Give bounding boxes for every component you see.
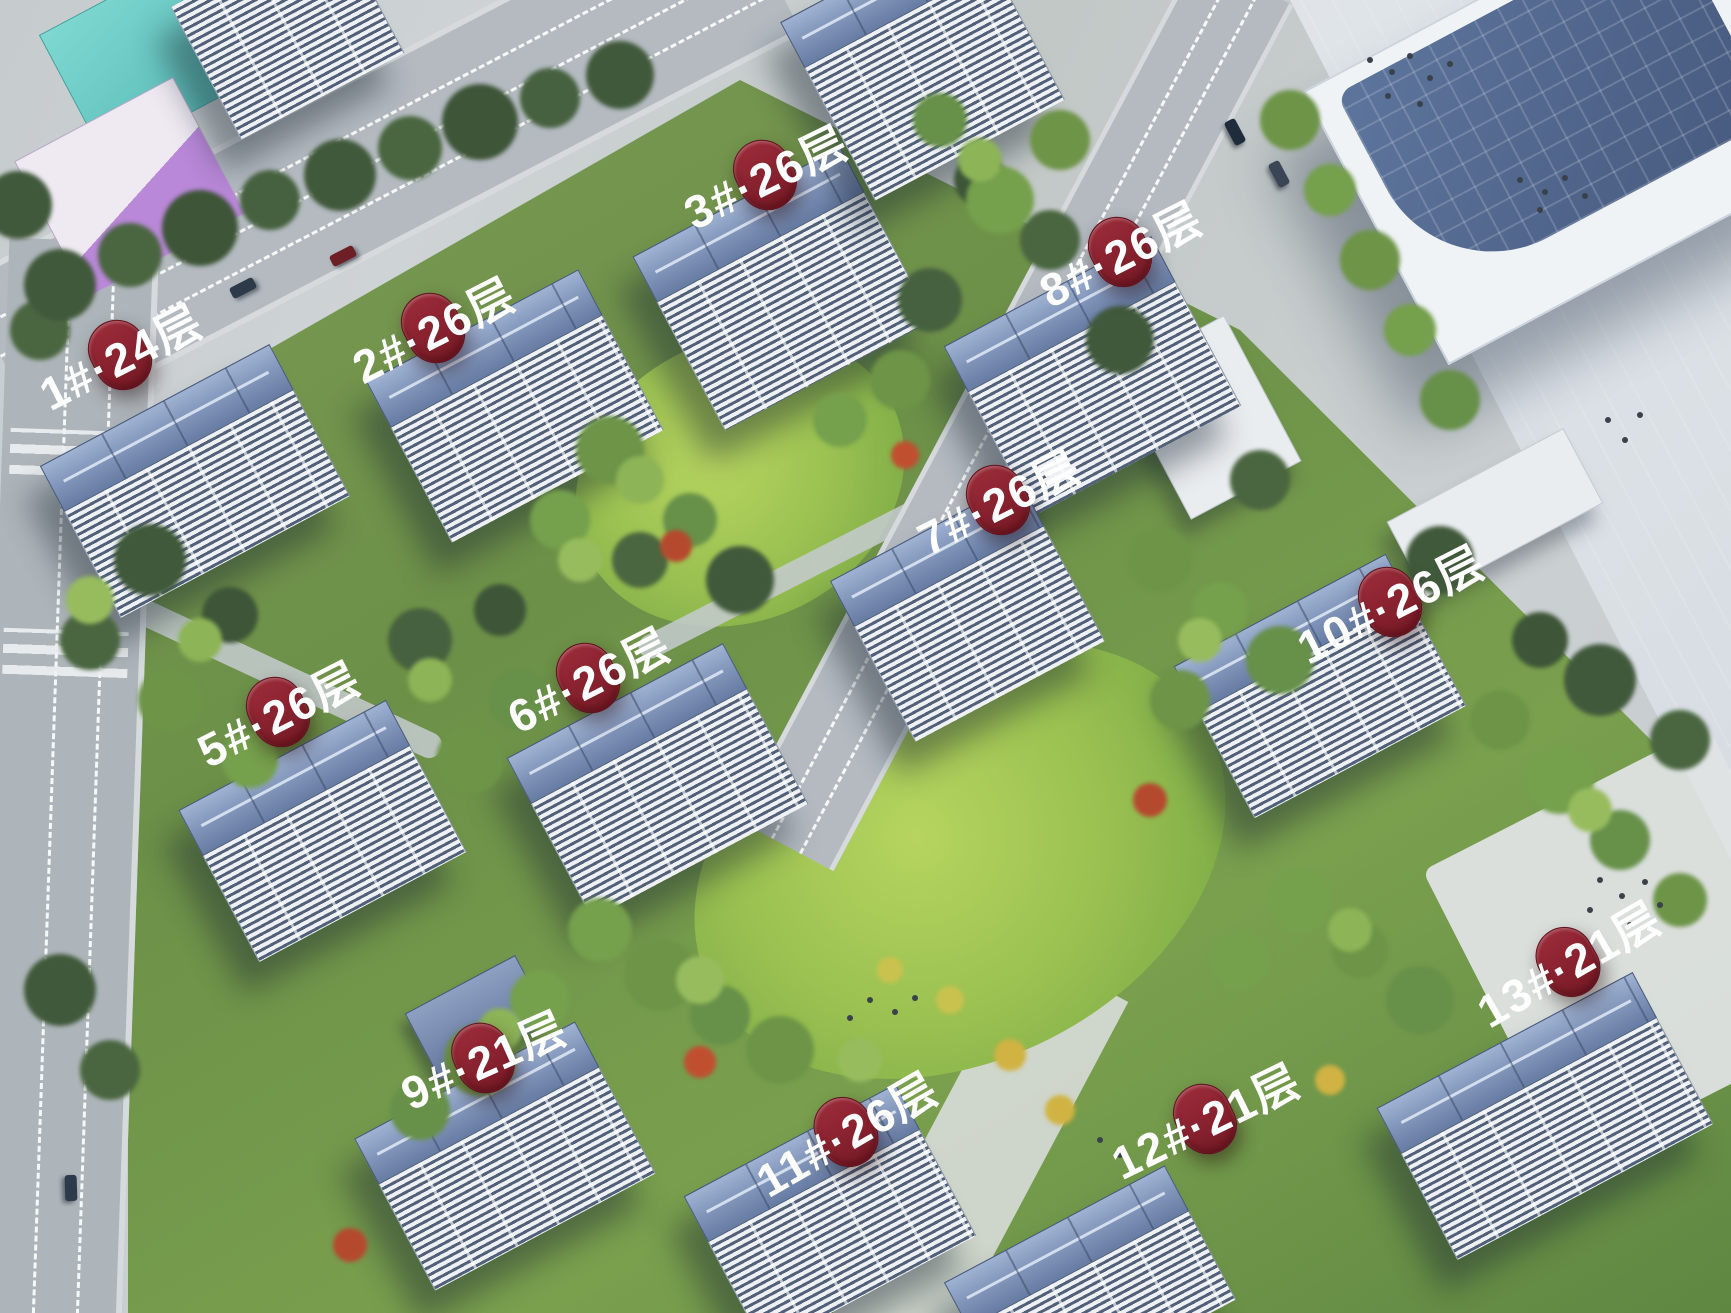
car: [1268, 160, 1291, 189]
site-plan-rendering: 1#·24层 2#·26层 3#·26层 5#·26层 6#·26层 7#·26…: [0, 0, 1731, 1313]
car: [65, 1175, 78, 1201]
people-dots: [0, 0, 6, 6]
tree-cluster-yellow-palm: [0, 0, 60, 60]
car: [1224, 118, 1247, 147]
crosswalk: [2, 628, 129, 678]
